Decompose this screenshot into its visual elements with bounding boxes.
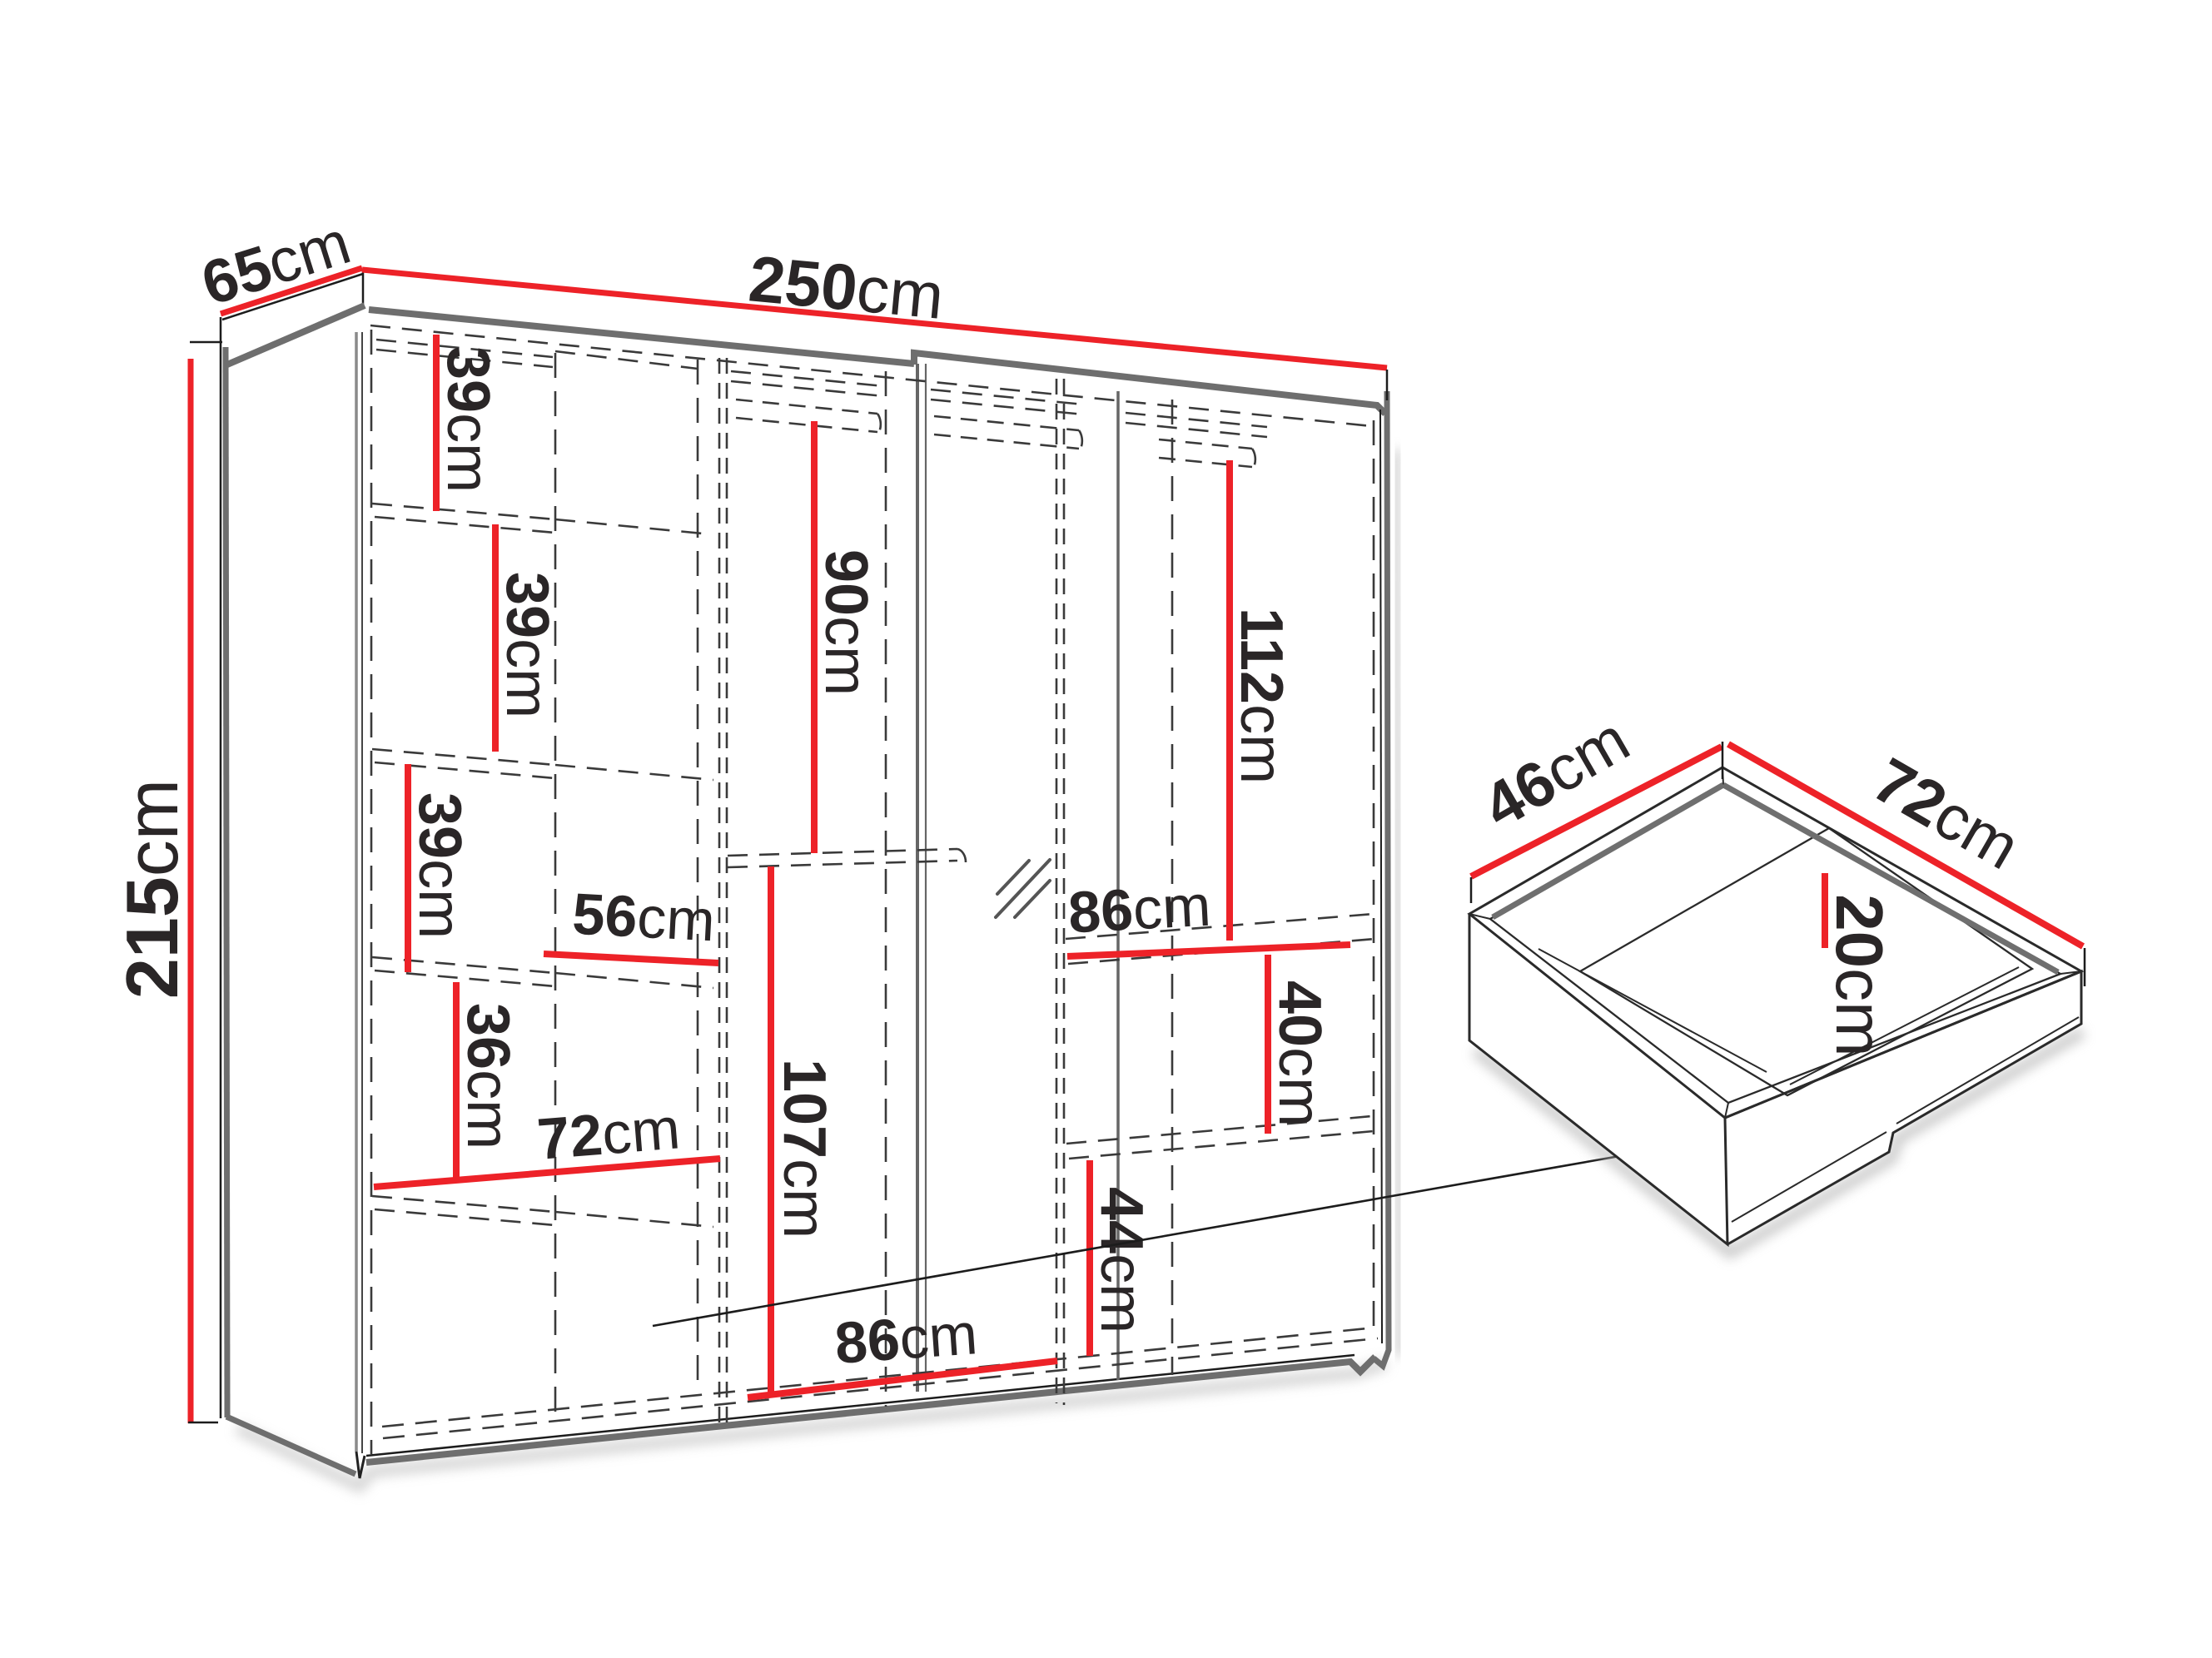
svg-text:107cm: 107cm xyxy=(771,1059,838,1239)
svg-text:44cm: 44cm xyxy=(1088,1187,1155,1333)
svg-text:40cm: 40cm xyxy=(1266,980,1333,1127)
svg-text:36cm: 36cm xyxy=(455,1003,521,1149)
svg-text:112cm: 112cm xyxy=(1228,608,1295,784)
svg-text:86cm: 86cm xyxy=(1066,873,1212,946)
svg-text:20cm: 20cm xyxy=(1822,894,1896,1057)
svg-text:39cm: 39cm xyxy=(494,572,560,718)
svg-text:86cm: 86cm xyxy=(833,1301,979,1376)
svg-text:39cm: 39cm xyxy=(435,346,501,493)
svg-text:72cm: 72cm xyxy=(535,1095,683,1171)
svg-text:215cm: 215cm xyxy=(111,779,193,999)
svg-text:90cm: 90cm xyxy=(813,549,879,696)
svg-text:39cm: 39cm xyxy=(406,792,473,939)
svg-text:56cm: 56cm xyxy=(571,881,717,954)
